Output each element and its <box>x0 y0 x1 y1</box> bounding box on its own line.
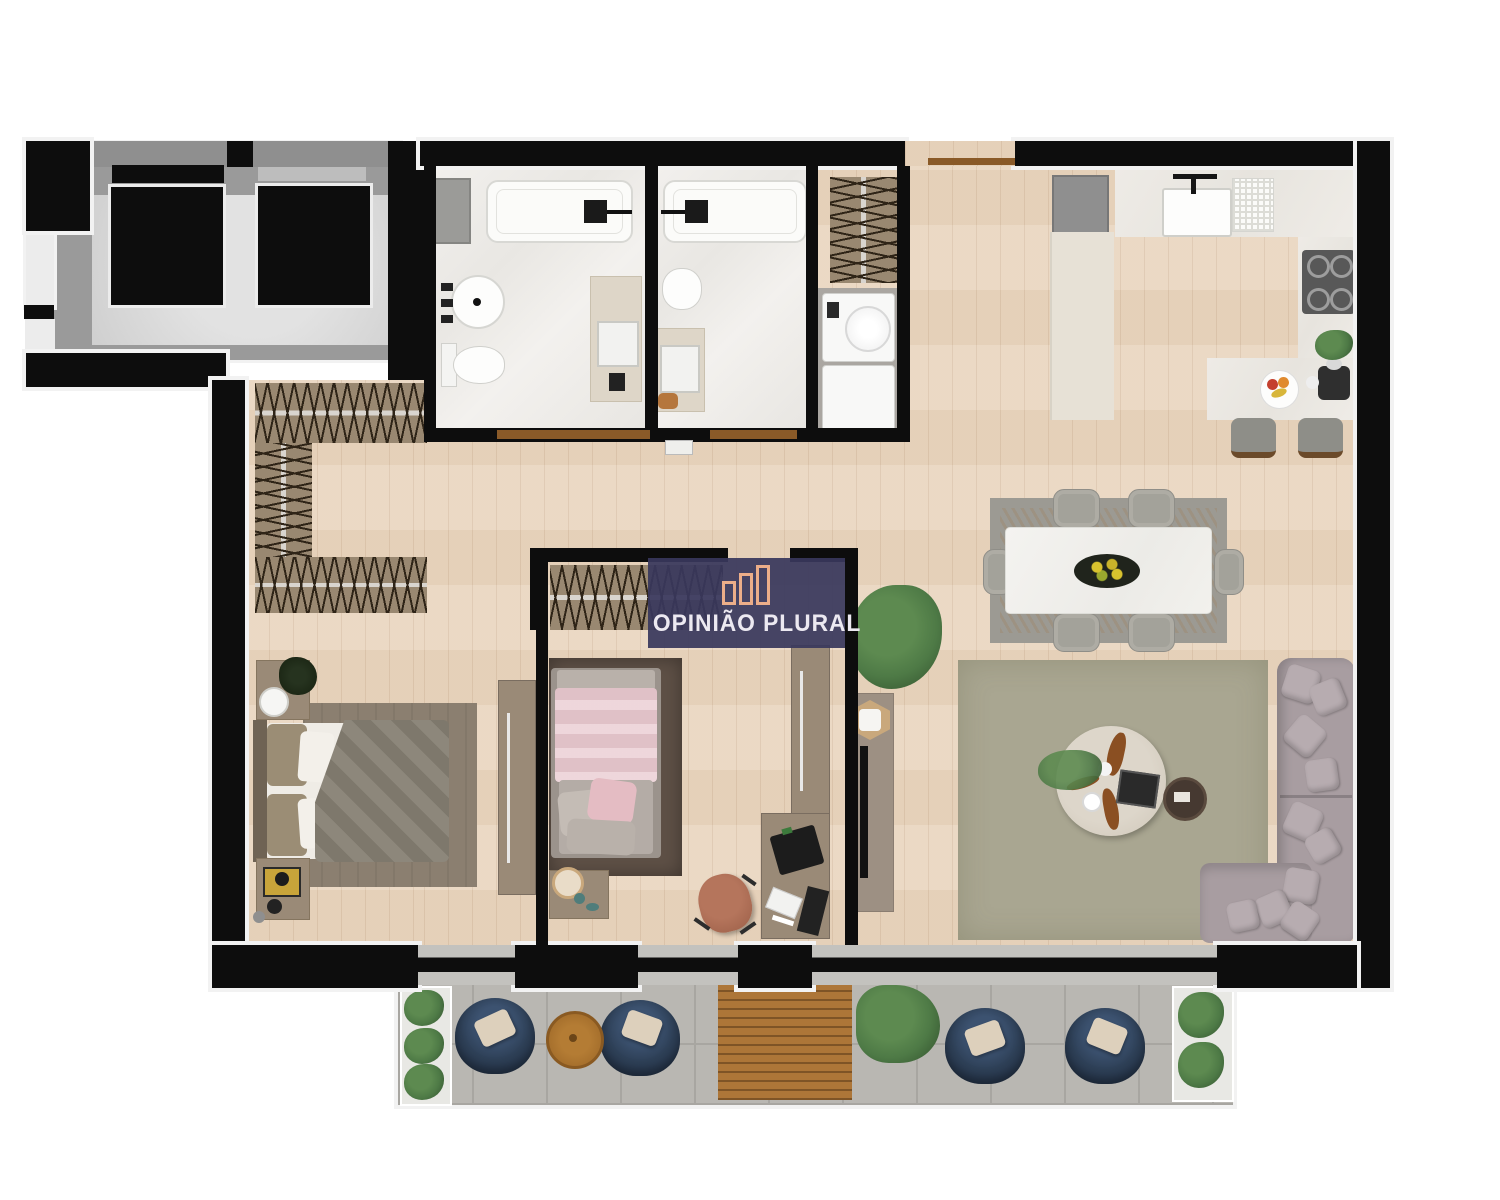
balcony-planter-left <box>400 986 452 1106</box>
tv <box>860 746 868 878</box>
balcony-table-center <box>569 1034 577 1042</box>
burner <box>1330 288 1353 311</box>
right-wall <box>1357 141 1390 988</box>
bed-2 <box>551 668 661 858</box>
laundry-right-wall <box>897 166 910 442</box>
vanity-1-soap <box>609 373 625 391</box>
sliding-door-bedroom-2 <box>638 945 738 985</box>
cup <box>253 911 265 923</box>
fruit <box>1278 377 1289 388</box>
bidet-controls <box>441 279 453 323</box>
balcony-armchair <box>1065 1008 1145 1084</box>
balcony-climber-plant <box>856 985 940 1063</box>
shower-2-head <box>685 200 708 223</box>
dining-table <box>1005 527 1212 614</box>
brand-logo-icon <box>722 563 772 607</box>
wardrobe-bedroom-1 <box>498 680 536 895</box>
shower-2 <box>663 180 807 243</box>
wardrobe-handle <box>800 671 803 791</box>
sliding-door-living-room <box>812 945 1217 985</box>
bed-1 <box>253 720 449 862</box>
toilet-2-bowl <box>662 268 702 310</box>
laptop <box>769 824 824 875</box>
bedroom-divider-wall <box>536 562 548 945</box>
bottom-wall-seg-4 <box>1217 945 1357 988</box>
bathroom-1-door-threshold <box>497 430 650 439</box>
core-left-wall-bar <box>24 305 54 319</box>
sofa-pillow <box>1304 757 1340 793</box>
fruit <box>1267 379 1278 390</box>
kitchen-peninsula-counter <box>1207 358 1357 420</box>
kettle <box>267 899 282 914</box>
door-jamb-nib <box>665 440 693 455</box>
keyboard <box>765 887 803 919</box>
balcony-armchair <box>600 1000 680 1076</box>
dining-chair <box>1128 613 1175 652</box>
burner <box>1330 255 1353 278</box>
nightstand-plant <box>279 657 317 695</box>
sink-1 <box>597 321 639 367</box>
kitchen-duct <box>1052 175 1109 234</box>
dining-chair <box>1053 489 1100 528</box>
nightstand-1-top <box>256 660 310 720</box>
washer-knob <box>827 302 839 318</box>
logo-bar-medium <box>739 573 753 605</box>
planter-plant <box>404 1064 444 1100</box>
walk-in-closet-bottom <box>255 557 427 613</box>
bed-2-pillow-pink <box>586 777 637 825</box>
bathroom-divider-wall <box>645 166 658 442</box>
side-table-item <box>1174 792 1190 802</box>
washer-drum <box>845 306 891 352</box>
bed-2-head <box>557 670 655 690</box>
shower-1-head <box>584 200 607 223</box>
walk-in-closet-left <box>255 443 312 557</box>
armchair-pillow <box>1085 1016 1129 1055</box>
watermark: OPINIÃO PLURAL <box>648 558 845 648</box>
toilet-1 <box>441 343 505 385</box>
desk-chair <box>693 868 755 942</box>
bed-2-blanket <box>555 688 657 782</box>
balcony-armchair <box>945 1008 1025 1084</box>
nightstand-1-bottom <box>256 858 310 920</box>
planter-plant <box>1178 1042 1224 1088</box>
toilet-2 <box>660 266 702 310</box>
dish-rack <box>1232 178 1274 232</box>
armchair-pillow <box>473 1008 517 1049</box>
bottom-wall-seg-3 <box>738 945 812 988</box>
decor-teal <box>574 893 585 904</box>
balcony-deck <box>718 985 852 1100</box>
shower-1 <box>486 180 633 243</box>
sliding-door-bedroom-1 <box>418 945 515 985</box>
bar-stool <box>1298 418 1343 458</box>
bathroom-1-left-wall <box>424 166 436 442</box>
coaster <box>1082 792 1102 812</box>
core-pillar <box>227 141 253 167</box>
bathroom-2-door-threshold <box>710 430 797 439</box>
burner <box>1307 288 1330 311</box>
sofa-cushion-line <box>1280 795 1352 798</box>
kitchen-tall-cabinet <box>1050 232 1114 420</box>
elevator-1-door-frame <box>112 165 224 183</box>
coffee-table <box>1056 726 1166 836</box>
armchair-pillow <box>620 1009 663 1048</box>
top-wall-right-segment <box>1015 141 1390 166</box>
bedroom-2-wardrobe-panel <box>791 645 830 817</box>
shower-2-arm <box>661 210 687 214</box>
bathroom-2-right-wall <box>806 166 818 442</box>
bed-2-pillow-gray <box>566 818 636 856</box>
sink-2 <box>660 345 700 393</box>
book-dot <box>275 872 289 886</box>
core-right-wall <box>388 141 426 393</box>
planter-plant <box>404 1028 444 1064</box>
coffee-cup <box>1306 376 1319 389</box>
nightstand-2 <box>549 870 609 919</box>
dining-chair <box>1128 489 1175 528</box>
floor-plan: OPINIÃO PLURAL <box>0 0 1500 1200</box>
elevator-2-shaft <box>255 183 373 308</box>
fruit-bowl <box>1260 370 1299 409</box>
shower-1-arm <box>606 210 632 214</box>
elevator-1-shaft <box>108 184 226 308</box>
vanity-2 <box>651 328 705 412</box>
bidet-drain <box>473 298 481 306</box>
core-bottom-wall <box>26 353 226 387</box>
toilet-1-bowl <box>453 346 505 384</box>
vanity-1 <box>590 276 642 402</box>
walk-in-closet-top <box>255 383 427 443</box>
nightstand-lamp <box>259 687 289 717</box>
core-left-ledge-2 <box>25 319 55 357</box>
bidet <box>451 275 505 329</box>
elevator-2-door-slot <box>258 167 366 181</box>
left-wall <box>212 380 245 988</box>
logo-bar-tall <box>756 565 770 605</box>
entry-closet <box>830 177 897 283</box>
bed-1-headboard <box>253 720 267 862</box>
burner <box>1307 255 1330 278</box>
brand-text: OPINIÃO PLURAL <box>653 610 840 638</box>
coffee-maker <box>1318 366 1350 400</box>
wardrobe-handle <box>507 713 510 863</box>
washer <box>822 293 895 362</box>
planter-plant <box>404 990 444 1026</box>
entrance-door-threshold <box>905 141 1015 166</box>
vanity-2-basket <box>658 393 678 409</box>
elevator-core <box>22 112 426 394</box>
bottom-wall-seg-1 <box>212 945 418 988</box>
cooktop <box>1302 250 1355 314</box>
dryer <box>822 365 895 434</box>
balcony-side-table <box>546 1011 604 1069</box>
bedroom-2-living-wall <box>845 548 858 945</box>
sofa <box>1200 655 1357 945</box>
entrance-door-sill <box>928 158 1015 165</box>
top-wall-left-segment <box>420 141 905 166</box>
sofa-pillow <box>1225 898 1261 934</box>
bar-stool <box>1231 418 1276 458</box>
kitchen-faucet-spout <box>1191 176 1196 194</box>
tablet <box>797 886 829 936</box>
planter-plant <box>1178 992 1224 1038</box>
logo-bar-small <box>722 581 736 605</box>
decor-teal <box>586 903 599 911</box>
kitchen-counter <box>1115 166 1356 237</box>
dining-chair <box>1214 549 1244 595</box>
clock-face <box>859 709 881 731</box>
balcony-armchair <box>455 998 535 1074</box>
table-book <box>1116 769 1160 808</box>
balcony-planter-right <box>1172 986 1234 1102</box>
dining-chair <box>1053 613 1100 652</box>
armchair-pillow <box>963 1019 1006 1058</box>
core-corner-wall <box>26 141 90 231</box>
core-left-ledge <box>26 231 54 307</box>
bottom-wall-seg-2 <box>515 945 638 988</box>
centerpiece-flowers <box>1082 556 1132 584</box>
desk <box>761 813 830 939</box>
kitchen-sink <box>1162 188 1232 237</box>
